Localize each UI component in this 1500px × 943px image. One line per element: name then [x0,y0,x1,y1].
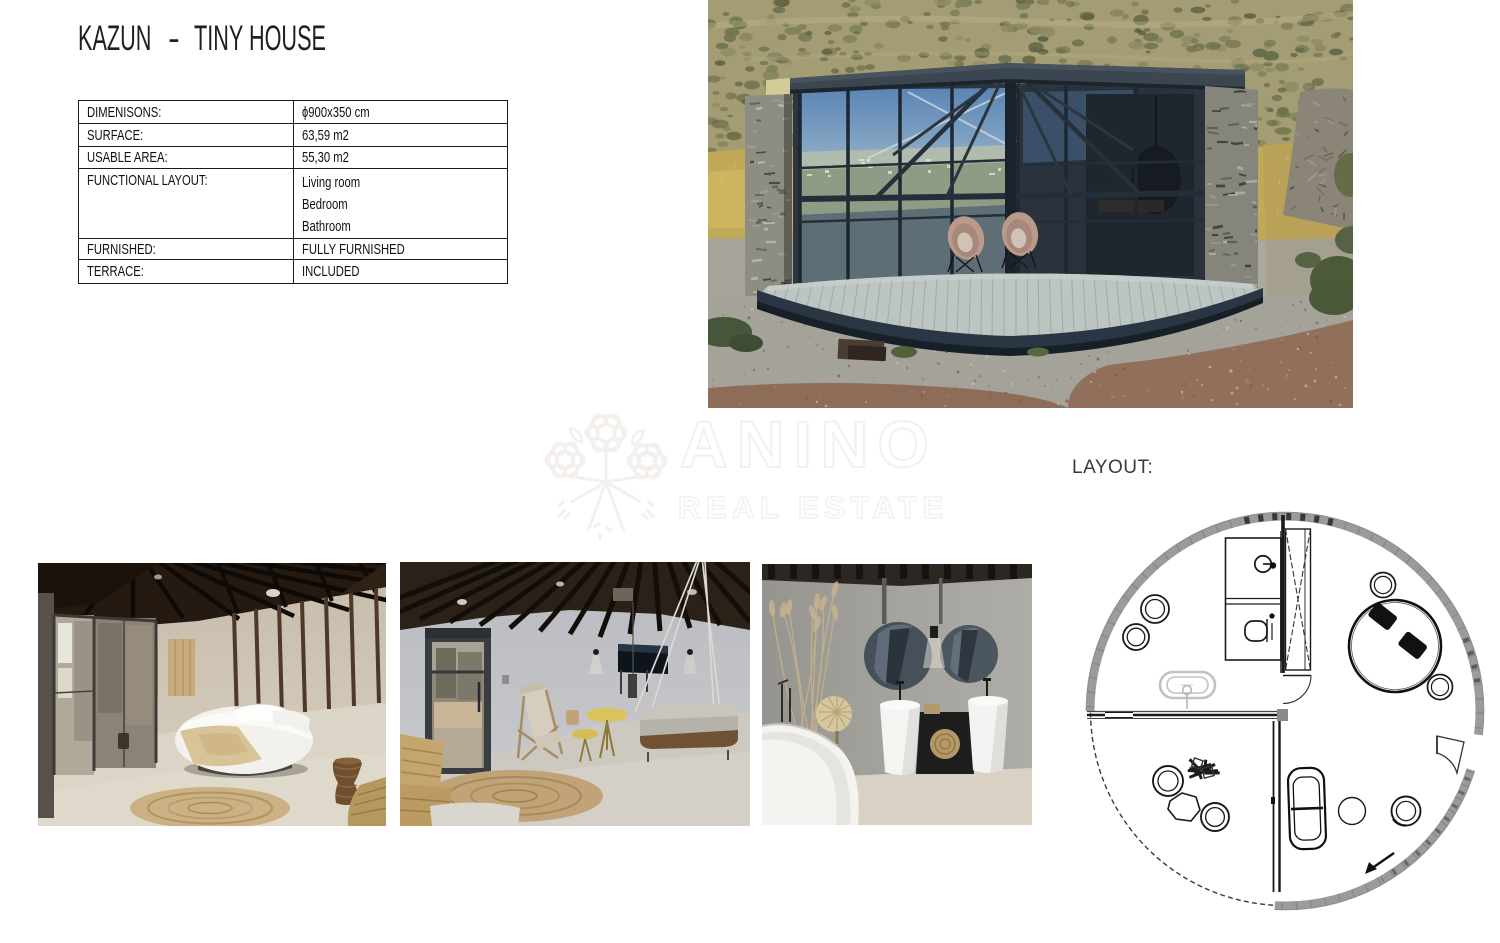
svg-text:ANINO: ANINO [680,407,938,481]
svg-text:REAL ESTATE: REAL ESTATE [678,490,949,525]
